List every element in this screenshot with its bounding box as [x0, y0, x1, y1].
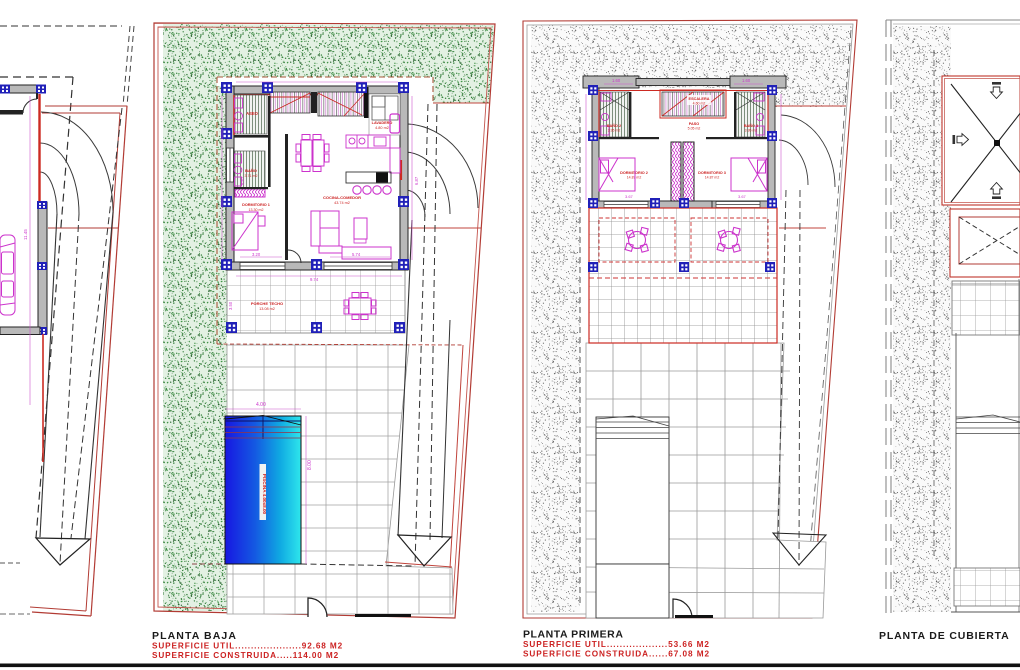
svg-text:14.87 m2: 14.87 m2	[627, 176, 642, 180]
svg-text:ASEO: ASEO	[246, 111, 259, 116]
svg-text:3.67: 3.67	[738, 194, 747, 199]
svg-text:4.00: 4.00	[256, 402, 266, 408]
svg-text:SUPERFICIE CONSTRUIDA......67.: SUPERFICIE CONSTRUIDA......67.08 M2	[523, 650, 710, 659]
svg-text:9.74: 9.74	[310, 277, 319, 282]
svg-text:6.87: 6.87	[240, 176, 245, 185]
svg-text:13.30 m2: 13.30 m2	[249, 208, 264, 212]
svg-text:BAÑO: BAÑO	[245, 168, 257, 173]
svg-text:PLANTA DE CUBIERTA: PLANTA DE CUBIERTA	[879, 630, 1010, 642]
svg-text:ESCALERA: ESCALERA	[689, 97, 710, 101]
svg-text:3.20: 3.20	[252, 252, 261, 257]
svg-text:1.60: 1.60	[742, 78, 751, 83]
svg-text:4.60 m2: 4.60 m2	[693, 102, 706, 106]
svg-text:3.71 m2: 3.71 m2	[245, 174, 258, 178]
svg-text:43.74 m2: 43.74 m2	[334, 201, 350, 205]
svg-text:6.87: 6.87	[414, 176, 419, 185]
svg-text:11.45: 11.45	[23, 229, 28, 240]
svg-text:COCINA-COMEDOR: COCINA-COMEDOR	[323, 195, 361, 200]
svg-text:PLANTA BAJA: PLANTA BAJA	[152, 630, 237, 642]
svg-text:DORMITORIO 2: DORMITORIO 2	[620, 171, 648, 175]
svg-text:3.95 m2: 3.95 m2	[745, 129, 758, 133]
svg-text:8.00: 8.00	[307, 460, 313, 470]
svg-text:3.50: 3.50	[228, 301, 233, 310]
svg-text:LAVADERO: LAVADERO	[372, 121, 393, 125]
svg-text:5.05 m2: 5.05 m2	[688, 127, 701, 131]
svg-text:DORMITORIO 1: DORMITORIO 1	[242, 203, 270, 207]
svg-text:5.74: 5.74	[352, 252, 361, 257]
svg-text:PORCHE TECHO: PORCHE TECHO	[251, 301, 283, 306]
svg-text:DORMITORIO 3: DORMITORIO 3	[698, 171, 726, 175]
svg-text:SUPERFICIE UTIL...............: SUPERFICIE UTIL...................53.66 …	[523, 640, 710, 649]
svg-text:3.95 m2: 3.95 m2	[608, 129, 621, 133]
svg-text:PASO: PASO	[689, 122, 700, 126]
svg-text:4.80 m2: 4.80 m2	[375, 126, 389, 130]
svg-text:SUPERFICIE CONSTRUIDA.....114.: SUPERFICIE CONSTRUIDA.....114.00 M2	[152, 651, 339, 660]
svg-text:SUPERFICIE UTIL...............: SUPERFICIE UTIL.....................92.6…	[152, 642, 343, 651]
svg-text:1.60: 1.60	[612, 78, 621, 83]
svg-text:13.08 m2: 13.08 m2	[259, 307, 275, 311]
svg-text:BAÑO 2: BAÑO 2	[607, 123, 621, 128]
svg-text:PISCINA 4.00x8.00: PISCINA 4.00x8.00	[262, 474, 267, 515]
svg-text:BAÑO 3: BAÑO 3	[744, 123, 758, 128]
svg-text:PLANTA PRIMERA: PLANTA PRIMERA	[523, 629, 623, 641]
svg-text:3.67: 3.67	[625, 194, 634, 199]
svg-text:14.87 m2: 14.87 m2	[705, 176, 720, 180]
